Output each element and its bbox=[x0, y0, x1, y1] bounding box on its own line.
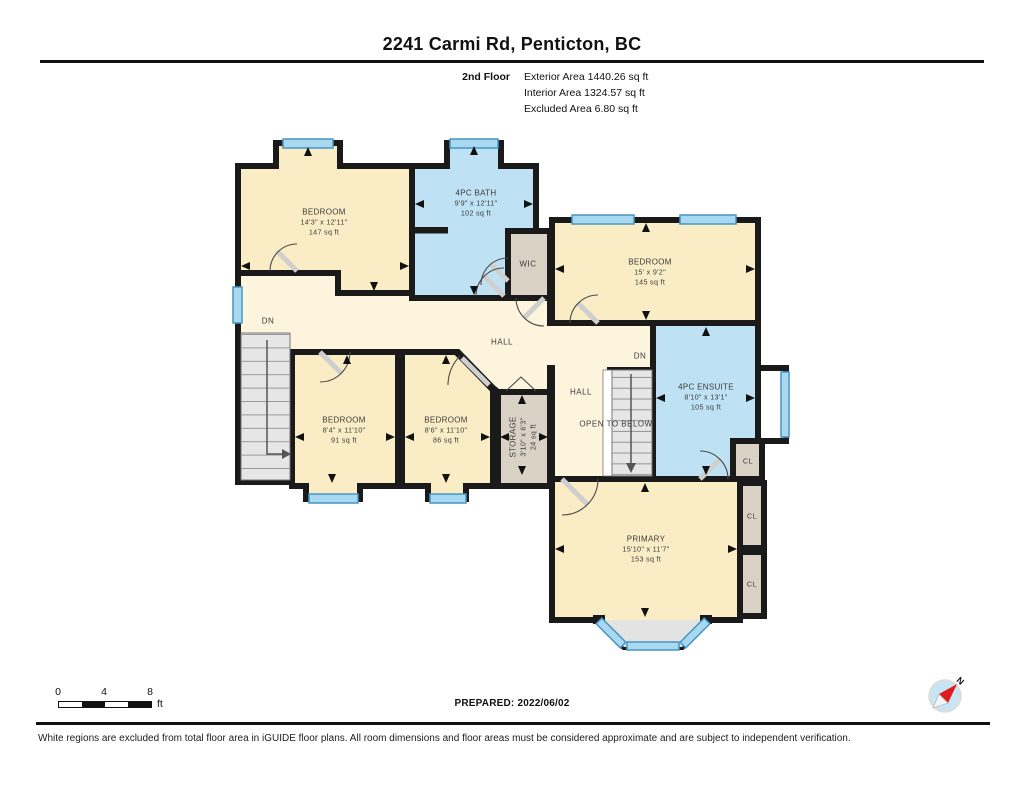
scale-bar bbox=[58, 701, 152, 708]
label-wic: WIC bbox=[519, 260, 536, 269]
label-bedroom-right: BEDROOM15' x 9'2"145 sq ft bbox=[628, 257, 671, 286]
label-open-to-below: OPEN TO BELOW bbox=[579, 420, 652, 429]
label-storage: STORAGE3'10" x 6'3"24 sq ft bbox=[508, 416, 537, 457]
label-hall-right: HALL bbox=[570, 388, 592, 397]
label-dn-left: DN bbox=[262, 317, 275, 326]
disclaimer-text: White regions are excluded from total fl… bbox=[38, 733, 851, 744]
prepared-date: PREPARED: 2022/06/02 bbox=[455, 698, 570, 709]
label-bedroom-m1: BEDROOM8'4" x 11'10"91 sq ft bbox=[322, 415, 365, 444]
label-bath: 4PC BATH9'9" x 12'11"102 sq ft bbox=[455, 188, 498, 217]
label-hall-main: HALL bbox=[491, 338, 513, 347]
label-bedroom-m2: BEDROOM8'6" x 11'10"86 sq ft bbox=[424, 415, 467, 444]
scale-tick-8: 8 bbox=[140, 686, 160, 698]
label-cl1: CL bbox=[743, 457, 753, 466]
closets-shape bbox=[733, 441, 764, 616]
footer-divider bbox=[36, 722, 990, 725]
label-primary: PRIMARY15'10" x 11'7"153 sq ft bbox=[622, 534, 669, 563]
floorplan-page: 2241 Carmi Rd, Penticton, BC 2nd Floor E… bbox=[0, 0, 1024, 791]
label-dn-right: DN bbox=[634, 352, 647, 361]
label-ensuite: 4PC ENSUITE8'10" x 13'1"105 sq ft bbox=[678, 382, 734, 411]
label-cl3: CL bbox=[747, 580, 757, 589]
scale-unit: ft bbox=[157, 698, 163, 710]
floorplan-graphic bbox=[0, 0, 1024, 791]
scale-tick-4: 4 bbox=[94, 686, 114, 698]
stairs-left bbox=[241, 333, 291, 480]
label-bedroom-tl: BEDROOM14'3" x 12'11"147 sq ft bbox=[300, 207, 347, 236]
label-cl2: CL bbox=[747, 512, 757, 521]
bay-window bbox=[593, 615, 712, 650]
scale-tick-0: 0 bbox=[48, 686, 68, 698]
